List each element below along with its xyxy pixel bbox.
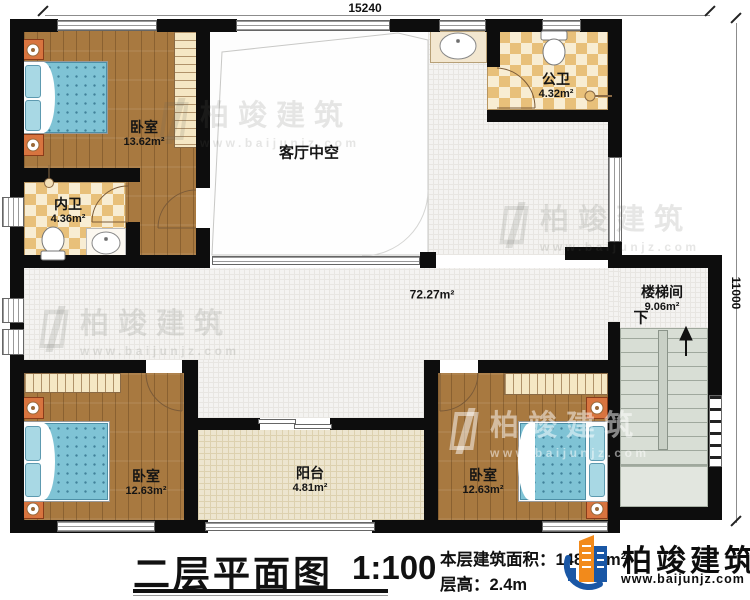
wall: [608, 255, 720, 268]
room-label-bedroom-bottom-right: 卧室 12.63m²: [463, 468, 504, 496]
wall: [487, 19, 500, 67]
wall: [196, 228, 210, 258]
window: [542, 521, 608, 532]
stair-handrail: [658, 330, 668, 450]
room-label-living-void: 客厅中空: [279, 146, 339, 163]
wall: [608, 322, 620, 520]
void-guardrail: [212, 256, 420, 265]
wall: [708, 255, 722, 520]
wall: [10, 19, 24, 533]
wall: [126, 222, 140, 258]
stair-landing: [620, 466, 708, 507]
hallway-floor: [24, 268, 608, 360]
wardrobe: [504, 373, 608, 395]
pillow: [589, 463, 605, 497]
room-label-balcony: 阳台 4.81m²: [293, 466, 328, 494]
wardrobe: [174, 31, 197, 148]
dimension-tick: [704, 5, 715, 16]
nightstand: [22, 39, 44, 60]
floor-plan-page: 柏竣建筑 www.baijunjz.com 柏竣建筑 www.baijunjz.…: [0, 0, 750, 600]
wall: [10, 255, 210, 268]
window: [439, 20, 486, 31]
pillow: [25, 100, 41, 131]
nightstand: [22, 397, 44, 419]
wall: [390, 19, 440, 32]
bed-sheet: [518, 423, 535, 500]
wall: [608, 507, 722, 520]
window: [2, 197, 24, 227]
wall: [330, 418, 426, 430]
title-underline: [133, 589, 388, 593]
pillow: [25, 463, 41, 497]
floor-height-line: 层高：2.4m: [440, 571, 527, 595]
wall: [420, 252, 436, 268]
dimension-tick: [730, 12, 741, 23]
floor-area-line: 本层建筑面积：148.09m²: [440, 546, 626, 570]
window: [2, 329, 24, 355]
vanity-counter: [430, 31, 487, 63]
window: [57, 20, 157, 31]
room-label-public-bath: 公卫 4.32m²: [539, 72, 574, 100]
stair-entry-floor: [608, 268, 620, 322]
wall: [184, 360, 198, 533]
pillow: [589, 426, 605, 461]
wall: [10, 360, 146, 373]
hallway-floor: [198, 360, 424, 418]
pillow: [25, 426, 41, 461]
wall: [424, 360, 440, 373]
title-underline-thin: [133, 595, 388, 596]
plan-scale: 1:100: [352, 549, 436, 587]
wall: [424, 360, 438, 533]
wall: [478, 360, 620, 373]
room-label-bedroom-bottom-left: 卧室 12.63m²: [126, 469, 167, 497]
nightstand: [586, 499, 608, 519]
window: [57, 521, 155, 532]
dimension-right-value: 11000: [729, 263, 743, 323]
nightstand: [22, 499, 44, 519]
living-void-underlay: [210, 31, 428, 255]
balcony-railing: [205, 522, 375, 531]
window: [608, 157, 622, 242]
wall: [10, 168, 140, 182]
stair-down-label: 下: [633, 311, 648, 328]
window: [542, 20, 581, 31]
pillow: [25, 65, 41, 98]
stair-window: [709, 395, 722, 467]
room-label-hallway-area: 72.27m²: [410, 288, 455, 301]
window: [236, 20, 390, 31]
sliding-door-leaf: [294, 424, 332, 429]
room-label-bedroom-top-left: 卧室 13.62m²: [124, 120, 165, 148]
nightstand: [22, 134, 44, 156]
wall: [198, 418, 260, 430]
room-label-ensuite-bath: 内卫 4.36m²: [51, 197, 86, 225]
dimension-top-value: 15240: [335, 1, 395, 15]
company-website: www.baijunjz.com: [621, 572, 745, 586]
wall: [196, 19, 210, 188]
wardrobe: [24, 373, 121, 393]
nightstand: [586, 397, 608, 419]
ensuite-sink-counter: [86, 228, 126, 258]
window: [2, 298, 24, 323]
dimension-line-top: [45, 15, 710, 16]
wall: [487, 110, 622, 122]
sliding-door-leaf: [258, 419, 296, 424]
